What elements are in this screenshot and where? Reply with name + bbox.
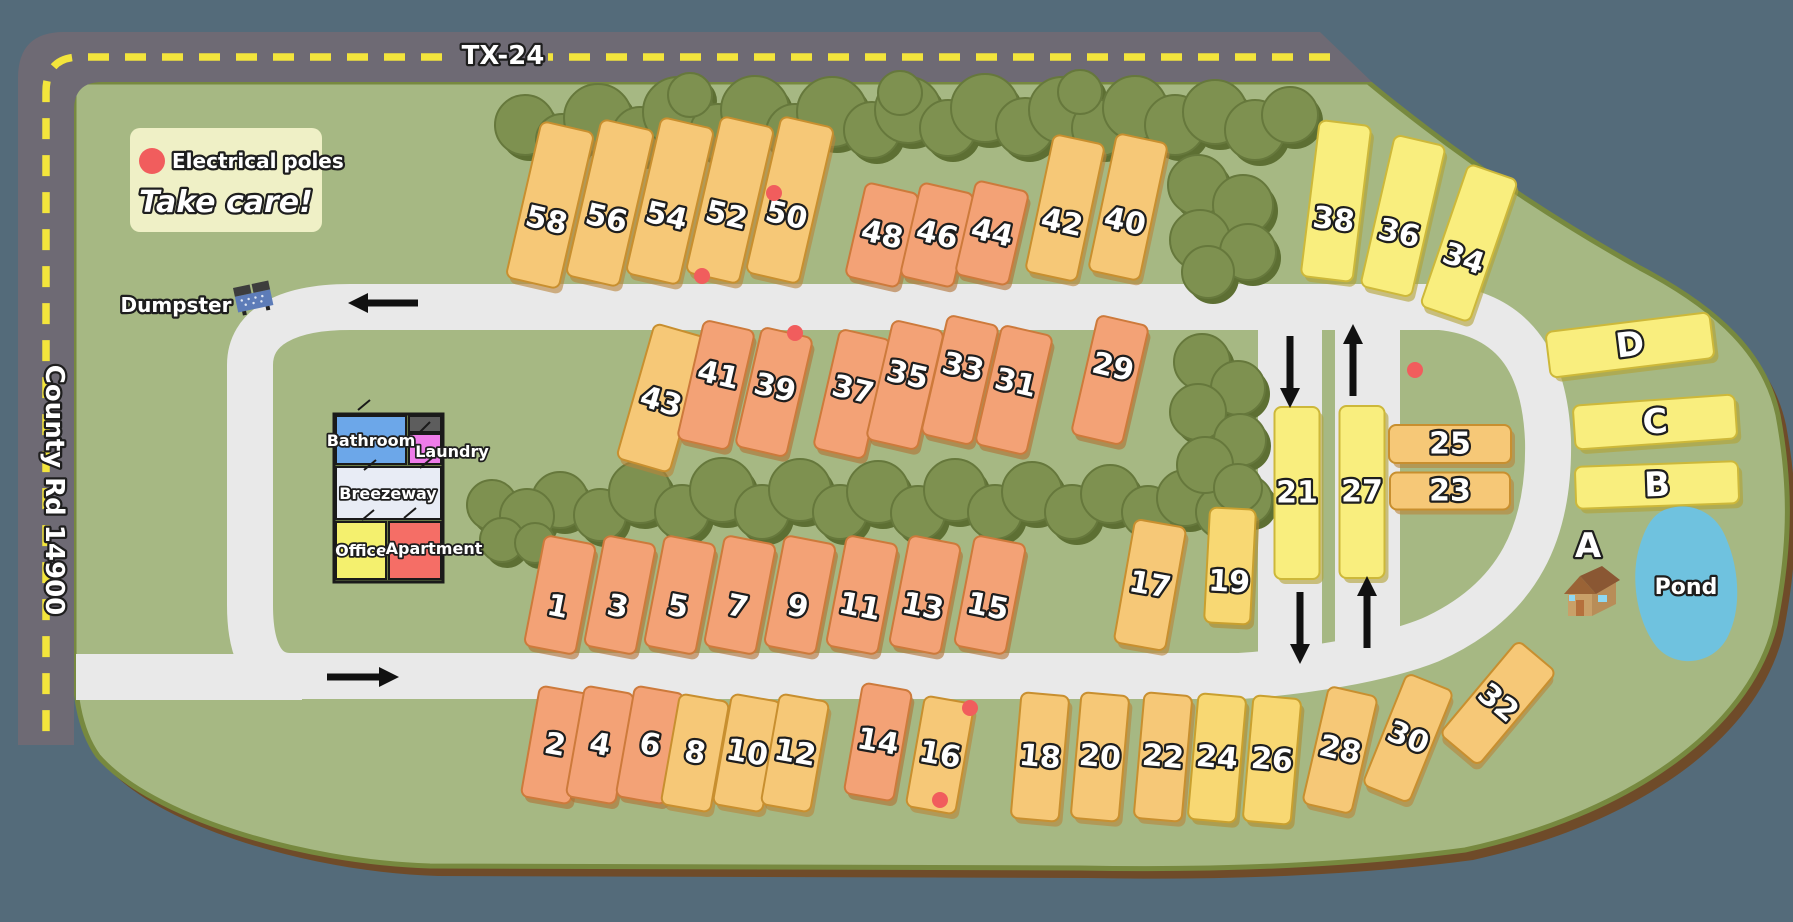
cabin-lot-label[interactable]: A bbox=[1575, 526, 1602, 566]
lot-label-17: 17 bbox=[1126, 564, 1173, 606]
apartment-label: Apartment bbox=[386, 539, 483, 558]
electrical-pole-6 bbox=[932, 792, 948, 808]
electrical-pole-5 bbox=[962, 700, 978, 716]
lot-25[interactable]: 25 bbox=[1389, 425, 1515, 468]
room-storage bbox=[409, 416, 441, 432]
laundry-label: Laundry bbox=[415, 442, 489, 461]
lot-label-25: 25 bbox=[1429, 427, 1471, 462]
lot-label-C: C bbox=[1641, 401, 1669, 443]
cabin-window bbox=[1598, 595, 1607, 602]
lot-label-20: 20 bbox=[1078, 738, 1123, 777]
lot-21[interactable]: 21 bbox=[1275, 407, 1324, 584]
county-road-label: County Rd 14900 bbox=[39, 365, 69, 616]
highway-label: TX-24 bbox=[462, 41, 545, 71]
lot-label-24: 24 bbox=[1195, 739, 1240, 778]
electrical-pole-marker-icon bbox=[139, 148, 165, 174]
electrical-pole-2 bbox=[694, 268, 710, 284]
pond-label: Pond bbox=[1655, 575, 1718, 600]
lot-label-D: D bbox=[1614, 323, 1647, 366]
bathroom-label: Bathroom bbox=[327, 431, 416, 450]
lot-label-38: 38 bbox=[1311, 200, 1357, 240]
legend-box: Electrical poles Take care! bbox=[130, 128, 344, 232]
breezeway-label: Breezeway bbox=[339, 484, 437, 503]
office-label: Office bbox=[335, 541, 387, 560]
lot-label-19: 19 bbox=[1207, 563, 1251, 600]
lot-label-21: 21 bbox=[1276, 476, 1318, 511]
lot-label-10: 10 bbox=[723, 732, 770, 774]
electrical-pole-3 bbox=[787, 325, 803, 341]
lot-label-23: 23 bbox=[1429, 474, 1471, 509]
lot-label-27: 27 bbox=[1341, 475, 1383, 510]
park-map-svg: 5856545250484644424038363443413937353331… bbox=[0, 0, 1793, 922]
lot-27[interactable]: 27 bbox=[1340, 406, 1389, 583]
cabin-window bbox=[1569, 595, 1575, 601]
lot-B[interactable]: B bbox=[1575, 461, 1744, 514]
lot-label-12: 12 bbox=[771, 732, 818, 774]
lot-label-18: 18 bbox=[1018, 738, 1063, 777]
dumpster-label: Dumpster bbox=[121, 293, 232, 317]
park-map: 5856545250484644424038363443413937353331… bbox=[0, 0, 1793, 922]
lot-label-16: 16 bbox=[916, 734, 963, 776]
legend-warning: Take care! bbox=[139, 185, 313, 220]
legend-marker-label: Electrical poles bbox=[172, 149, 344, 173]
cabin-door bbox=[1576, 600, 1584, 616]
lot-label-14: 14 bbox=[854, 721, 901, 763]
lot-label-22: 22 bbox=[1141, 738, 1186, 777]
lot-23[interactable]: 23 bbox=[1390, 473, 1514, 515]
lot-label-B: B bbox=[1643, 465, 1670, 506]
electrical-pole-4 bbox=[1407, 362, 1423, 378]
electrical-pole-1 bbox=[766, 185, 782, 201]
lot-19[interactable]: 19 bbox=[1204, 507, 1260, 629]
lot-label-26: 26 bbox=[1250, 741, 1295, 780]
